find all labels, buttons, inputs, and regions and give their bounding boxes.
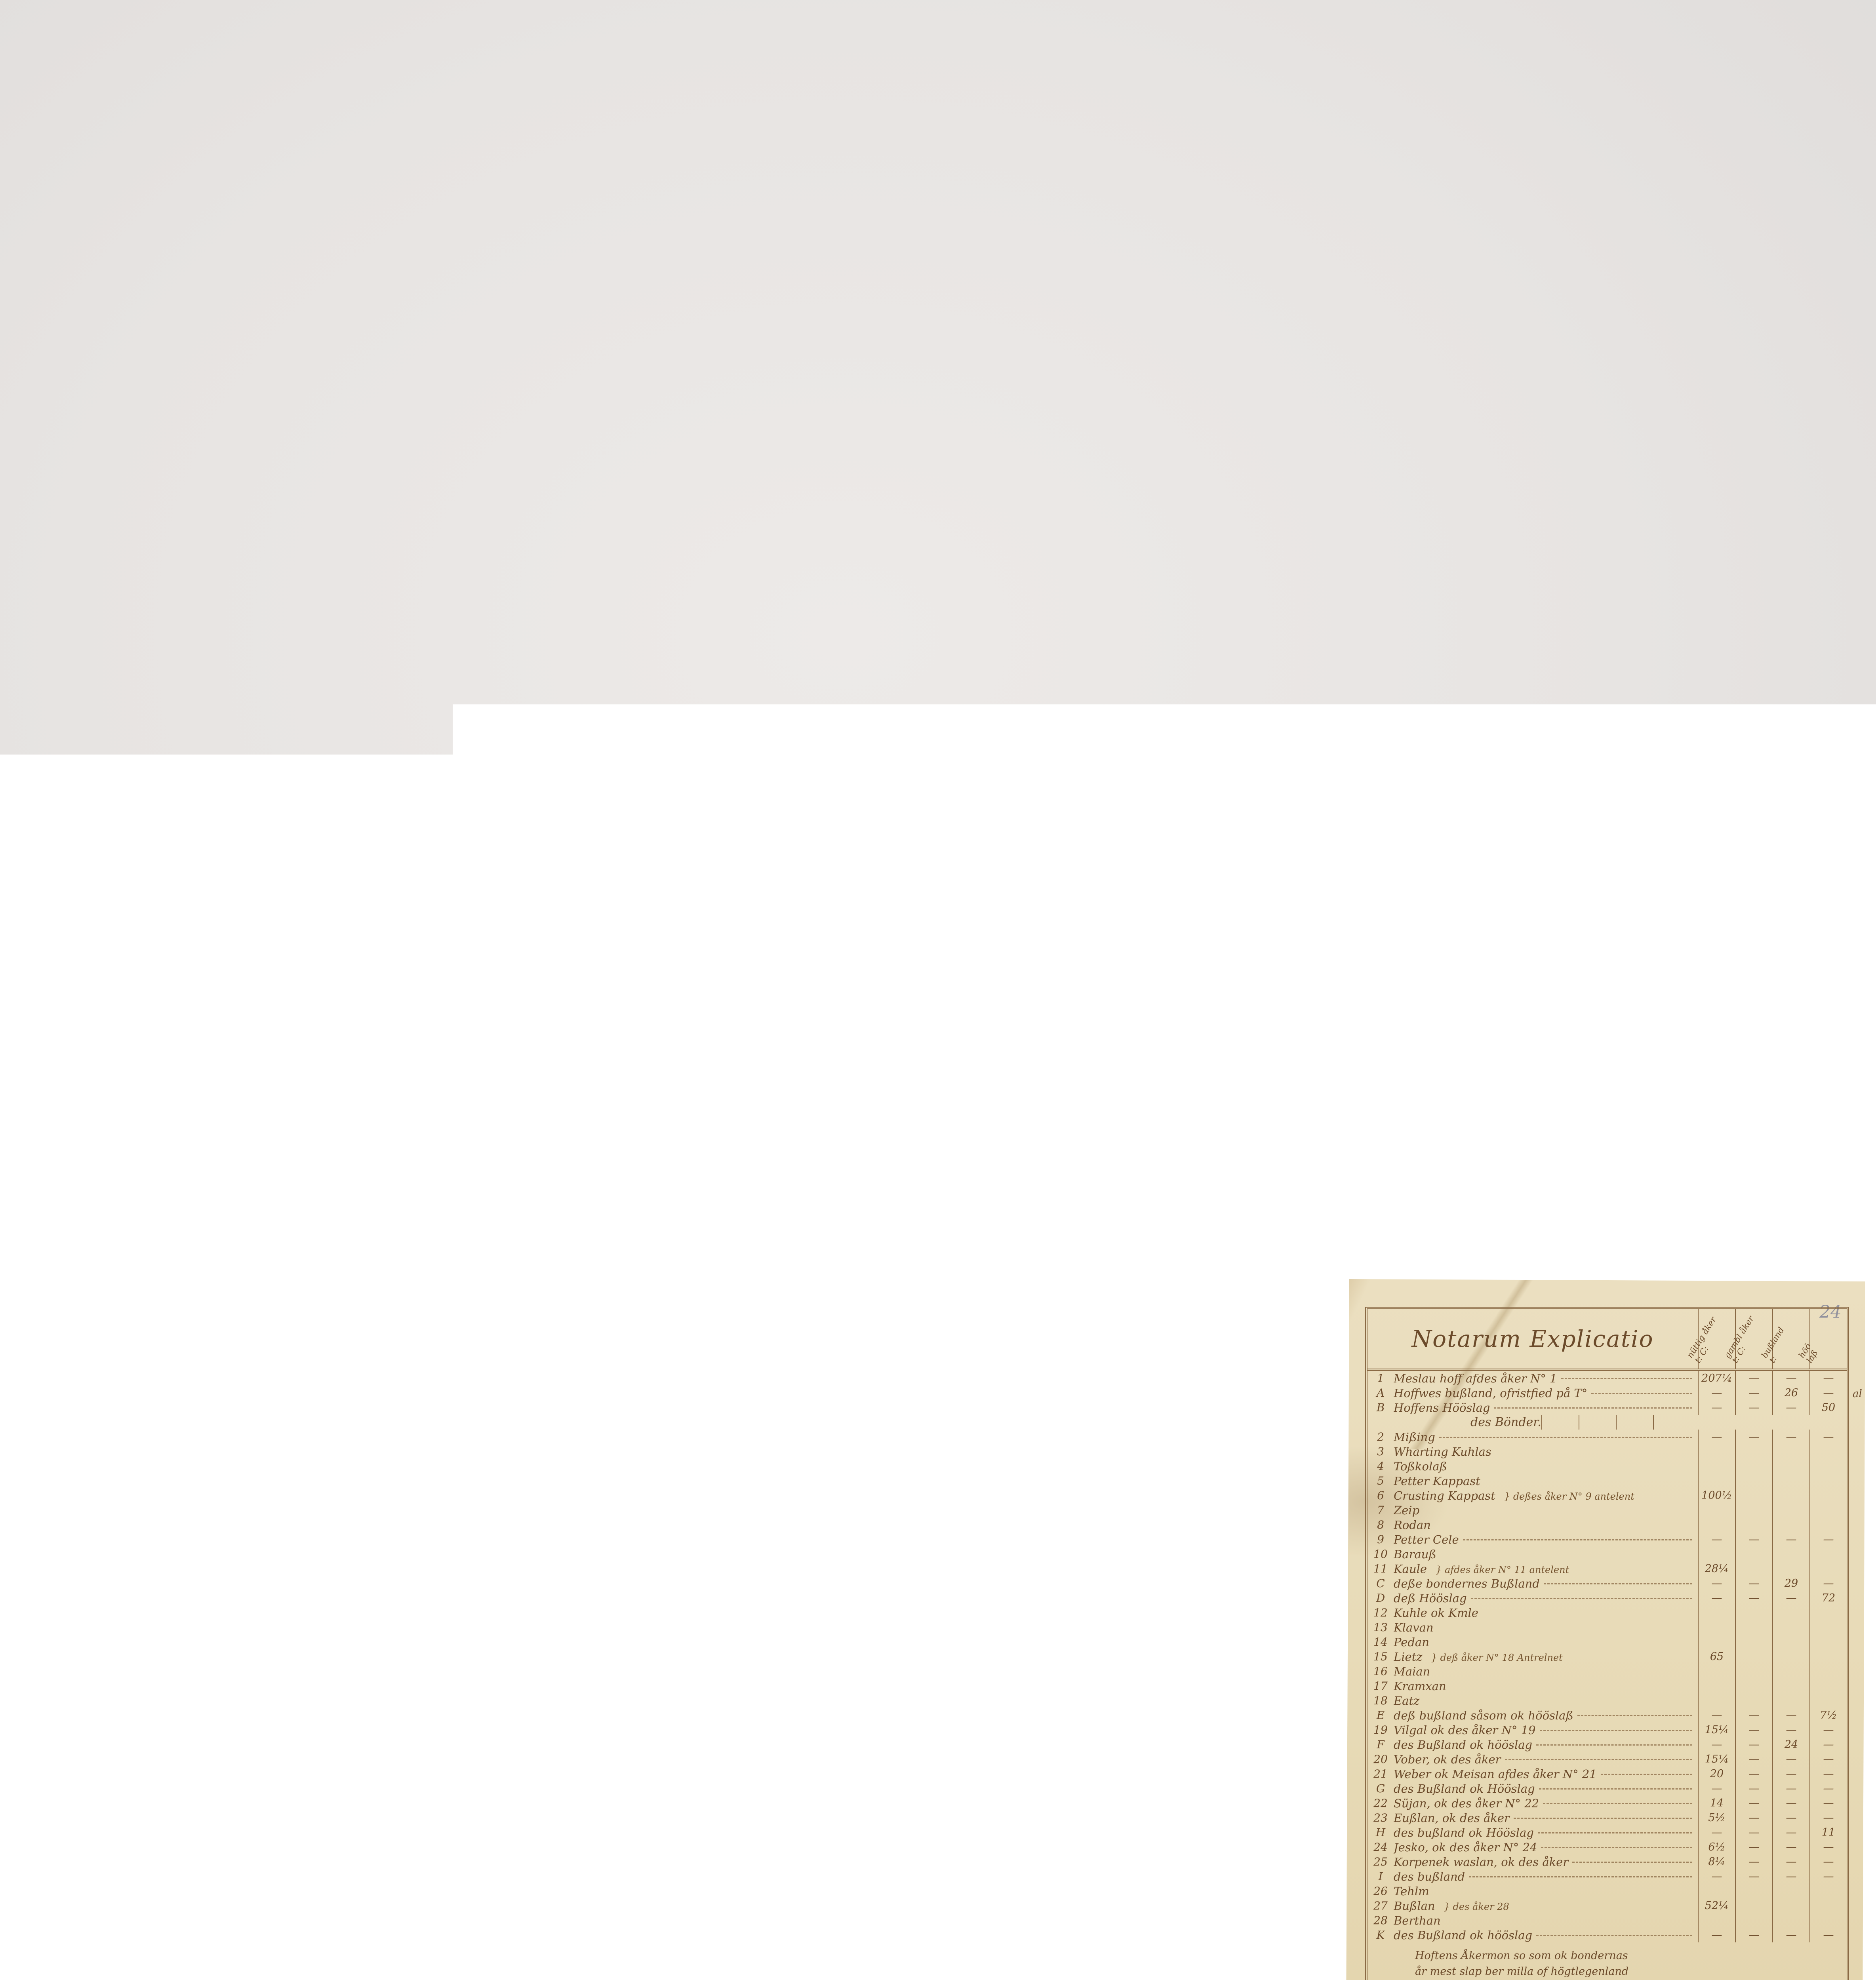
legend-value-cell: — <box>1735 1767 1772 1781</box>
legend-value-cell <box>1809 1679 1847 1693</box>
map-label: Pöbalo <box>355 487 410 510</box>
legend-value-cell <box>1809 1693 1847 1708</box>
legend-row: Ddeß Hööslag———72 <box>1367 1591 1847 1605</box>
legend-value-cell <box>1809 1620 1847 1635</box>
legend-row: 24Jesko, ok des åker N° 246½——— <box>1367 1840 1847 1854</box>
legend-row: 5Petter Kappast <box>1367 1474 1847 1488</box>
legend-row: 27Bußlan} des åker 2852¼ <box>1367 1898 1847 1913</box>
legend-value-cell: — <box>1735 1737 1772 1752</box>
legend-value-cell <box>1772 1635 1809 1649</box>
legend-value-cell: — <box>1772 1591 1809 1605</box>
legend-value-cell: — <box>1809 1854 1847 1869</box>
legend-value-cell: — <box>1735 1371 1772 1386</box>
legend-value-cell: — <box>1809 1752 1847 1767</box>
legend-value-cell: — <box>1735 1708 1772 1723</box>
legend-value-cell: 8¼ <box>1698 1854 1735 1869</box>
legend-value-cell: — <box>1809 1386 1847 1400</box>
legend-value-cell: — <box>1698 1532 1735 1547</box>
legend-value-cell <box>1772 1517 1809 1532</box>
legend-value-cell <box>1698 1620 1735 1635</box>
legend-value-cell <box>1772 1664 1809 1679</box>
legend-value-cell: — <box>1698 1591 1735 1605</box>
legend-value-cell: 15¼ <box>1698 1723 1735 1737</box>
legend-value-cell <box>1772 1488 1809 1503</box>
legend-value-cell: 50 <box>1809 1400 1847 1415</box>
map-label: Rydan <box>183 1103 229 1124</box>
legend-value-cell: 5½ <box>1698 1811 1735 1825</box>
legend-row: 18Eatz <box>1367 1693 1847 1708</box>
legend-value-cell <box>1809 1488 1847 1503</box>
legend-row: 14Pedan <box>1367 1635 1847 1649</box>
map-label: Laydena Gräntz <box>716 394 844 419</box>
legend-value-cell <box>1735 1898 1772 1913</box>
legend-value-cell: — <box>1809 1767 1847 1781</box>
legend-value-cell: 15¼ <box>1698 1752 1735 1767</box>
legend-value-cell <box>1809 1474 1847 1488</box>
legend-value-cell: — <box>1772 1811 1809 1825</box>
map-sheet: Pebalgz Gebiet, Messauhäff och Bönder, 2… <box>44 18 1378 1980</box>
legend-value-cell: 6½ <box>1698 1840 1735 1854</box>
legend-value-cell <box>1735 1488 1772 1503</box>
legend-value-cell: — <box>1809 1532 1847 1547</box>
legend-value-cell <box>1809 1635 1847 1649</box>
legend-value-cell: 26 <box>1772 1386 1809 1400</box>
legend-row: 20Vober, ok des åker15¼——— <box>1367 1752 1847 1767</box>
legend-value-cell: — <box>1772 1767 1809 1781</box>
map-label: See Fol: 3. <box>90 1902 145 1915</box>
legend-value-cell: — <box>1772 1532 1809 1547</box>
legend-value-cell: — <box>1735 1752 1772 1767</box>
legend-value-cell <box>1735 1693 1772 1708</box>
legend-value-cell <box>1772 1561 1809 1576</box>
legend-row: Hdes bußland ok Hööslag———11 <box>1367 1825 1847 1840</box>
legend-value-cell <box>1698 1884 1735 1898</box>
legend-value-cell: — <box>1698 1737 1735 1752</box>
legend-value-cell: — <box>1698 1400 1735 1415</box>
legend-value-cell <box>1735 1913 1772 1928</box>
legend-value-cell <box>1698 1503 1735 1517</box>
legend-value-cell <box>1698 1679 1735 1693</box>
legend-value-cell <box>1809 1459 1847 1474</box>
legend-row: 26Tehlm <box>1367 1884 1847 1898</box>
legend-value-cell: 24 <box>1772 1737 1809 1752</box>
legend-value-cell <box>1772 1503 1809 1517</box>
legend-value-cell: — <box>1772 1928 1809 1942</box>
legend-value-cell: — <box>1772 1869 1809 1884</box>
legend-row: des Bönder. <box>1367 1415 1847 1430</box>
legend-value-cell: — <box>1772 1371 1809 1386</box>
legend-value-cell: — <box>1735 1796 1772 1811</box>
legend-row: 4Toßkolaß <box>1367 1459 1847 1474</box>
legend-value-cell <box>1698 1913 1735 1928</box>
legend-value-cell <box>1809 1649 1847 1664</box>
legend-value-cell <box>1772 1898 1809 1913</box>
legend-value-cell: — <box>1698 1869 1735 1884</box>
legend-row: 8Rodan <box>1367 1517 1847 1532</box>
scale-tick-labels: 505001000 <box>1118 1896 1236 1909</box>
legend-value-cell: — <box>1772 1781 1809 1796</box>
map-label: Rydan <box>1163 631 1209 651</box>
legend-value-cell <box>1809 1884 1847 1898</box>
map-label: Siö <box>765 999 784 1013</box>
legend-row: 3Wharting Kuhlas <box>1367 1444 1847 1459</box>
legend-row: Kdes Bußland ok hööslag———— <box>1367 1928 1847 1942</box>
legend-value-cell <box>1698 1635 1735 1649</box>
legend-value-cell: — <box>1735 1576 1772 1591</box>
legend-value-cell <box>1735 1517 1772 1532</box>
legend-value-cell: — <box>1809 1928 1847 1942</box>
legend-value-cell: — <box>1809 1371 1847 1386</box>
legend-value-cell: 20 <box>1698 1767 1735 1781</box>
map-label: Brincken <box>139 1793 231 1823</box>
map-label: Hoff <box>148 1830 189 1854</box>
legend-row: 15Lietz} deß åker N° 18 Antrelnet65 <box>1367 1649 1847 1664</box>
scale-note: AfmächtA° 1683J.P. Schling <box>1243 1914 1295 1951</box>
legend-value-cell <box>1809 1898 1847 1913</box>
map-label: denna <box>246 938 289 956</box>
legend-value-cell <box>1772 1547 1809 1561</box>
legend-row: 25Korpenek waslan, ok des åker8¼——— <box>1367 1854 1847 1869</box>
scale-tick-label: 500 <box>1167 1896 1187 1908</box>
legend-value-cell <box>1698 1474 1735 1488</box>
map-label: müllan Schlal ok Hoff <box>516 312 621 327</box>
map-label: Fol: 3. <box>276 1808 312 1821</box>
legend-value-cell <box>1735 1679 1772 1693</box>
legend-value-cell: 11 <box>1809 1825 1847 1840</box>
legend-value-cell: — <box>1809 1576 1847 1591</box>
legend-value-cell <box>1809 1664 1847 1679</box>
legend-value-cell <box>1698 1547 1735 1561</box>
legend-value-cell: — <box>1698 1708 1735 1723</box>
legend-title: Notarum Explicatio <box>1411 1325 1653 1352</box>
legend-value-cell <box>1772 1884 1809 1898</box>
map-label: Gräntz <box>259 664 320 695</box>
legend-row: 2Mißing———— <box>1367 1430 1847 1444</box>
map-label: Buhl berg <box>335 1871 534 1936</box>
legend-value-cell <box>1698 1444 1735 1459</box>
legend-value-cell <box>1772 1913 1809 1928</box>
legend-value-cell: — <box>1772 1854 1809 1869</box>
legend-value-cell: — <box>1735 1591 1772 1605</box>
legend-value-cell <box>1735 1474 1772 1488</box>
legend-value-cell <box>1735 1605 1772 1620</box>
legend-value-cell <box>1772 1459 1809 1474</box>
legend-col-header: gambl åker t: C: <box>1735 1309 1772 1369</box>
legend-row: 17Kramxan <box>1367 1679 1847 1693</box>
map-label: Connecto <box>1210 748 1255 760</box>
legend-value-cell <box>1772 1620 1809 1635</box>
legend-row: 6Crusting Kappast} deßes åker N° 9 antel… <box>1367 1488 1847 1503</box>
scale-tick-label: 50 <box>1119 1896 1132 1908</box>
legend-value-cell: 52¼ <box>1698 1898 1735 1913</box>
legend-value-cell <box>1698 1459 1735 1474</box>
legend-row: Cdeße bondernes Bußland——29— <box>1367 1576 1847 1591</box>
legend-value-cell <box>1772 1444 1809 1459</box>
legend-value-cell <box>1809 1503 1847 1517</box>
legend-row: 7Zeip <box>1367 1503 1847 1517</box>
legend-value-cell: — <box>1809 1811 1847 1825</box>
legend-row: 9Petter Cele———— <box>1367 1532 1847 1547</box>
legend-value-cell <box>1735 1561 1772 1576</box>
legend-row: 19Vilgal ok des åker N° 1915¼——— <box>1367 1723 1847 1737</box>
map-label: Hoff. <box>961 1676 1048 1713</box>
legend-value-cell: — <box>1735 1811 1772 1825</box>
legend-value-cell <box>1735 1664 1772 1679</box>
legend-value-cell: — <box>1735 1825 1772 1840</box>
legend-value-cell: — <box>1735 1781 1772 1796</box>
scale-title: Scala Ulnarum <box>1119 1930 1238 1973</box>
legend-value-cell: 7½ <box>1809 1708 1847 1723</box>
legend-table: Notarum Explicatio nüttig åker t: C:gamb… <box>1365 1307 1849 1980</box>
legend-value-cell: — <box>1772 1825 1809 1840</box>
legend-row: 10Barauß <box>1367 1547 1847 1561</box>
legend-value-cell: — <box>1772 1430 1809 1444</box>
legend-row: 11Kaule} afdes åker N° 11 antelent28¼ <box>1367 1561 1847 1576</box>
legend-row: AHoffwes bußland, ofristfied på T°——26—a… <box>1367 1386 1847 1400</box>
legend-value-cell: — <box>1698 1928 1735 1942</box>
legend-value-cell <box>1772 1679 1809 1693</box>
legend-value-cell: 207¼ <box>1698 1371 1735 1386</box>
legend-value-cell: 29 <box>1772 1576 1809 1591</box>
legend-value-cell: 72 <box>1809 1591 1847 1605</box>
legend-value-cell: — <box>1772 1723 1809 1737</box>
legend-value-cell <box>1809 1605 1847 1620</box>
legend-sheet: 24 Notarum Explicatio nüttig åker t: C:g… <box>1345 1279 1865 1980</box>
legend-value-cell: — <box>1698 1430 1735 1444</box>
legend-row: Edeß bußland såsom ok hööslaß———7½ <box>1367 1708 1847 1723</box>
legend-value-cell: 28¼ <box>1698 1561 1735 1576</box>
legend-value-cell: — <box>1809 1796 1847 1811</box>
legend-value-cell <box>1772 1693 1809 1708</box>
legend-row: Fdes Bußland ok hööslag——24— <box>1367 1737 1847 1752</box>
legend-value-cell: — <box>1809 1737 1847 1752</box>
legend-row: 21Weber ok Meisan afdes åker N° 2120——— <box>1367 1767 1847 1781</box>
legend-value-cell <box>1809 1547 1847 1561</box>
legend-value-cell <box>1735 1444 1772 1459</box>
legend-value-cell <box>1735 1503 1772 1517</box>
legend-value-cell <box>1735 1635 1772 1649</box>
legend-value-cell <box>1735 1547 1772 1561</box>
legend-row: 16Maian <box>1367 1664 1847 1679</box>
legend-row: 22Süjan, ok des åker N° 2214——— <box>1367 1796 1847 1811</box>
scale-tick-label: 1000 <box>1220 1896 1246 1908</box>
map-label: Hoffs <box>715 1916 821 1967</box>
legend-value-cell: — <box>1698 1825 1735 1840</box>
legend-value-cell: 100½ <box>1698 1488 1735 1503</box>
legend-row: Ides bußland———— <box>1367 1869 1847 1884</box>
legend-value-cell: — <box>1735 1869 1772 1884</box>
legend-value-cell: — <box>1735 1723 1772 1737</box>
legend-row: 13Klavan <box>1367 1620 1847 1635</box>
legend-col-header: höö laß <box>1809 1309 1847 1369</box>
legend-col-header: nüttig åker t: C: <box>1698 1309 1735 1369</box>
legend-value-cell: 14 <box>1698 1796 1735 1811</box>
legend-value-cell: — <box>1698 1576 1735 1591</box>
legend-value-cell <box>1698 1517 1735 1532</box>
legend-value-cell: — <box>1735 1840 1772 1854</box>
legend-value-cell <box>1735 1620 1772 1635</box>
legend-value-cell: — <box>1809 1781 1847 1796</box>
legend-row: BHoffens Hööslag———50 <box>1367 1400 1847 1415</box>
legend-value-cell: — <box>1772 1752 1809 1767</box>
legend-value-cell: — <box>1735 1854 1772 1869</box>
map-label: Meßlau <box>777 1663 905 1701</box>
legend-row: Gdes Bußland ok Hööslag———— <box>1367 1781 1847 1796</box>
scale-ticks <box>1118 1910 1236 1915</box>
legend-value-cell <box>1735 1459 1772 1474</box>
legend-value-cell: — <box>1735 1430 1772 1444</box>
legend-row: 12Kuhle ok Kmle <box>1367 1605 1847 1620</box>
legend-value-cell: — <box>1772 1708 1809 1723</box>
legend-value-cell: — <box>1809 1869 1847 1884</box>
legend-value-cell <box>1809 1561 1847 1576</box>
legend-value-cell: — <box>1735 1400 1772 1415</box>
map-label: denna <box>1019 474 1063 495</box>
legend-value-cell: — <box>1698 1386 1735 1400</box>
legend-value-cell <box>1698 1605 1735 1620</box>
scale-bar: 505001000 Scala Ulnarum <box>1118 1896 1244 1980</box>
map-label: Siö <box>898 1833 916 1847</box>
legend-value-cell: — <box>1735 1928 1772 1942</box>
legend-value-cell: — <box>1698 1781 1735 1796</box>
legend-value-cell: — <box>1809 1430 1847 1444</box>
legend-value-cell: 65 <box>1698 1649 1735 1664</box>
legend-header: Notarum Explicatio nüttig åker t: C:gamb… <box>1367 1309 1847 1371</box>
legend-value-cell: — <box>1809 1723 1847 1737</box>
legend-value-cell <box>1735 1649 1772 1664</box>
legend-value-cell <box>1698 1693 1735 1708</box>
legend-value-cell <box>1809 1913 1847 1928</box>
legend-row: 28Berthan <box>1367 1913 1847 1928</box>
legend-value-cell <box>1735 1884 1772 1898</box>
map-label: til <box>50 1662 61 1675</box>
map-label: F. 3. <box>883 1969 905 1980</box>
map-label: Vördig Lud <box>530 293 588 307</box>
legend-row: 23Eußlan, ok des åker5½——— <box>1367 1811 1847 1825</box>
legend-value-cell <box>1698 1664 1735 1679</box>
legend-value-cell: — <box>1735 1386 1772 1400</box>
legend-value-cell <box>1772 1649 1809 1664</box>
map-label: Siö <box>1078 916 1097 930</box>
map-labels-layer: WiethVördig Ludmüllan Schlal ok HoffLayd… <box>44 18 1378 1980</box>
legend-value-cell <box>1809 1517 1847 1532</box>
legend-value-cell: — <box>1735 1532 1772 1547</box>
legend-rows: 1Meslau hoff afdes åker N° 1207¼———AHoff… <box>1367 1371 1847 1942</box>
legend-value-cell: — <box>1772 1840 1809 1854</box>
legend-value-cell: — <box>1809 1840 1847 1854</box>
legend-value-cell: — <box>1772 1400 1809 1415</box>
legend-value-cell <box>1772 1474 1809 1488</box>
scale-title-box: Scala Ulnarum <box>1118 1927 1240 1976</box>
legend-value-cell <box>1809 1444 1847 1459</box>
legend-footer: Hoftens Åkermon so som ok bondernasår me… <box>1415 1948 1847 1980</box>
map-label: Idem Fol: 3. <box>966 1930 1029 1942</box>
legend-value-cell <box>1772 1605 1809 1620</box>
legend-row: 1Meslau hoff afdes åker N° 1207¼——— <box>1367 1371 1847 1386</box>
legend-col-header: bußland t: <box>1772 1309 1809 1369</box>
map-label: Wieth <box>569 246 624 271</box>
legend-value-cell: — <box>1772 1796 1809 1811</box>
